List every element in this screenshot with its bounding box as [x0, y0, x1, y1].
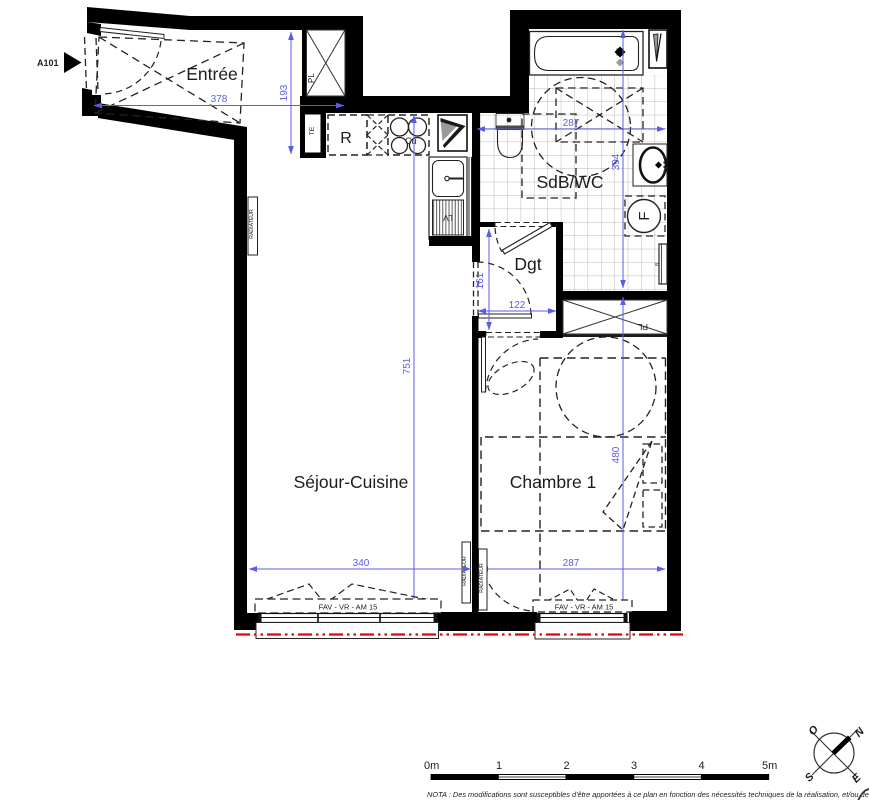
svg-text:480: 480: [611, 446, 622, 463]
svg-text:A101: A101: [37, 58, 59, 68]
svg-text:2: 2: [564, 760, 570, 772]
svg-text:3: 3: [631, 760, 637, 772]
svg-text:751: 751: [402, 357, 413, 374]
svg-text:RADIATEUR: RADIATEUR: [462, 556, 468, 586]
svg-text:5m: 5m: [762, 760, 777, 772]
svg-text:RADIATEUR: RADIATEUR: [249, 209, 255, 239]
svg-text:Chambre 1: Chambre 1: [510, 472, 597, 492]
svg-text:378: 378: [211, 94, 228, 105]
svg-text:PL: PL: [307, 73, 316, 83]
svg-text:F: F: [636, 211, 653, 220]
svg-text:FAV - VR - AM 15: FAV - VR - AM 15: [555, 603, 614, 612]
svg-text:NOTA : Des modifications sont: NOTA : Des modifications sont susceptibl…: [427, 790, 869, 799]
svg-text:Dgt: Dgt: [514, 254, 541, 274]
svg-text:161: 161: [475, 272, 486, 289]
svg-text:4: 4: [699, 760, 705, 772]
svg-text:287: 287: [563, 558, 580, 569]
svg-text:Entrée: Entrée: [186, 64, 238, 84]
svg-text:394: 394: [611, 153, 622, 170]
svg-text:Séjour-Cuisine: Séjour-Cuisine: [294, 472, 409, 492]
svg-text:1: 1: [496, 760, 502, 772]
svg-text:122: 122: [509, 300, 526, 311]
svg-text:R: R: [340, 130, 352, 147]
svg-text:FAV - VR - AM 15: FAV - VR - AM 15: [319, 603, 378, 612]
svg-text:TE: TE: [309, 126, 316, 135]
svg-text:8: 8: [655, 263, 661, 266]
svg-text:RADIATEUR: RADIATEUR: [479, 563, 485, 593]
svg-text:SdB/WC: SdB/WC: [536, 172, 603, 192]
svg-text:0m: 0m: [424, 760, 439, 772]
svg-text:340: 340: [353, 558, 370, 569]
svg-text:PL: PL: [637, 322, 648, 332]
svg-text:193: 193: [279, 84, 290, 101]
svg-text:287: 287: [563, 118, 580, 129]
svg-text:LV: LV: [443, 213, 453, 223]
